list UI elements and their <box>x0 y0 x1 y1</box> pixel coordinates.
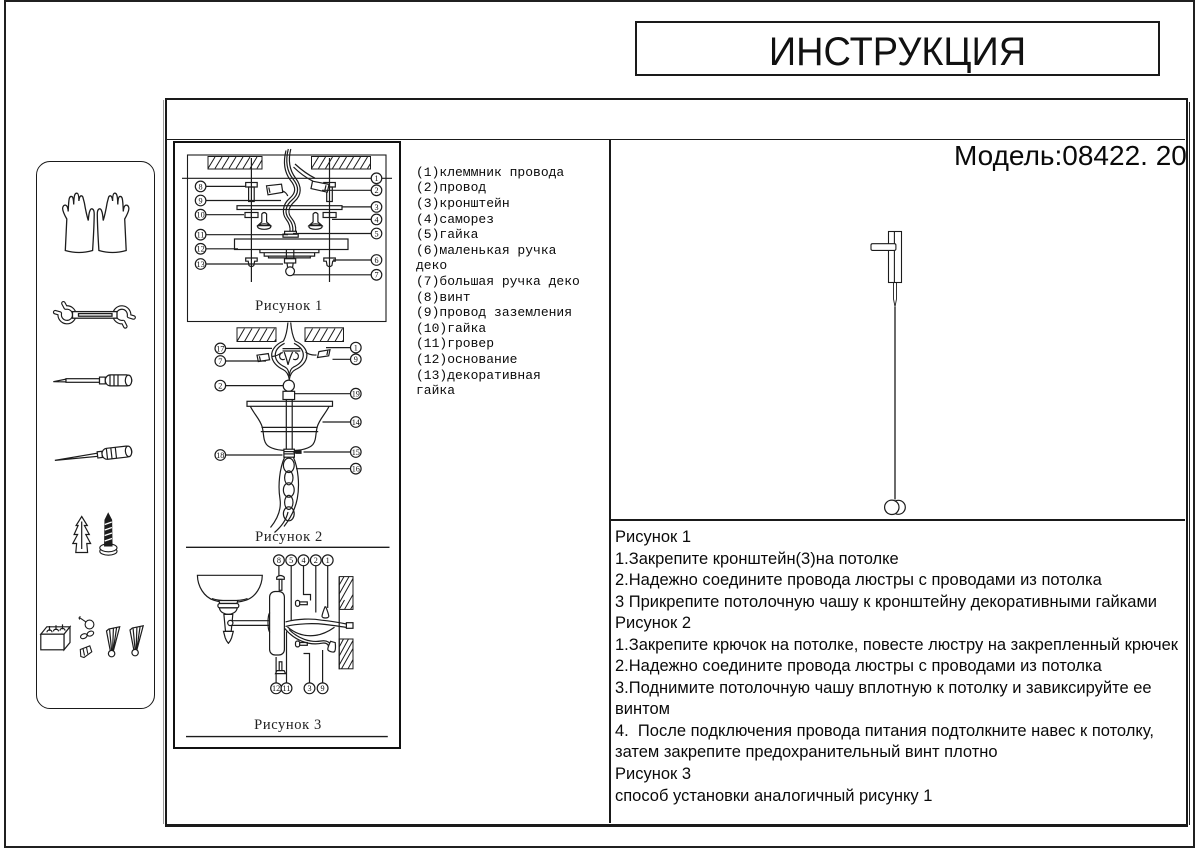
svg-text:7: 7 <box>218 357 222 366</box>
svg-text:19: 19 <box>352 390 360 399</box>
svg-text:12: 12 <box>272 684 280 693</box>
svg-text:11: 11 <box>283 684 291 693</box>
svg-text:6: 6 <box>374 256 378 265</box>
svg-text:2: 2 <box>374 186 378 195</box>
svg-text:17: 17 <box>216 344 224 353</box>
svg-text:13: 13 <box>197 260 205 269</box>
svg-text:2: 2 <box>314 556 318 565</box>
svg-text:14: 14 <box>352 418 360 427</box>
svg-text:10: 10 <box>197 211 205 220</box>
svg-text:9: 9 <box>354 355 358 364</box>
svg-text:2: 2 <box>218 382 222 391</box>
svg-text:7: 7 <box>374 271 378 280</box>
svg-text:1: 1 <box>354 344 358 353</box>
svg-text:8: 8 <box>199 182 203 191</box>
svg-text:3: 3 <box>374 203 378 212</box>
svg-text:4: 4 <box>374 215 378 224</box>
svg-text:Рисунок 1: Рисунок 1 <box>255 298 323 314</box>
svg-text:9: 9 <box>199 196 203 205</box>
svg-text:Рисунок 2: Рисунок 2 <box>255 529 323 545</box>
svg-text:11: 11 <box>197 231 205 240</box>
svg-text:5: 5 <box>374 229 378 238</box>
svg-text:5: 5 <box>289 556 293 565</box>
svg-text:Рисунок 3: Рисунок 3 <box>254 717 322 733</box>
svg-text:4: 4 <box>301 556 305 565</box>
svg-text:8: 8 <box>277 556 281 565</box>
svg-text:15: 15 <box>352 448 360 457</box>
svg-text:12: 12 <box>197 245 205 254</box>
svg-text:1: 1 <box>326 556 330 565</box>
svg-text:16: 16 <box>352 465 360 474</box>
svg-text:1: 1 <box>374 174 378 183</box>
svg-text:3: 3 <box>307 684 311 693</box>
svg-text:18: 18 <box>216 451 224 460</box>
svg-text:9: 9 <box>321 684 325 693</box>
